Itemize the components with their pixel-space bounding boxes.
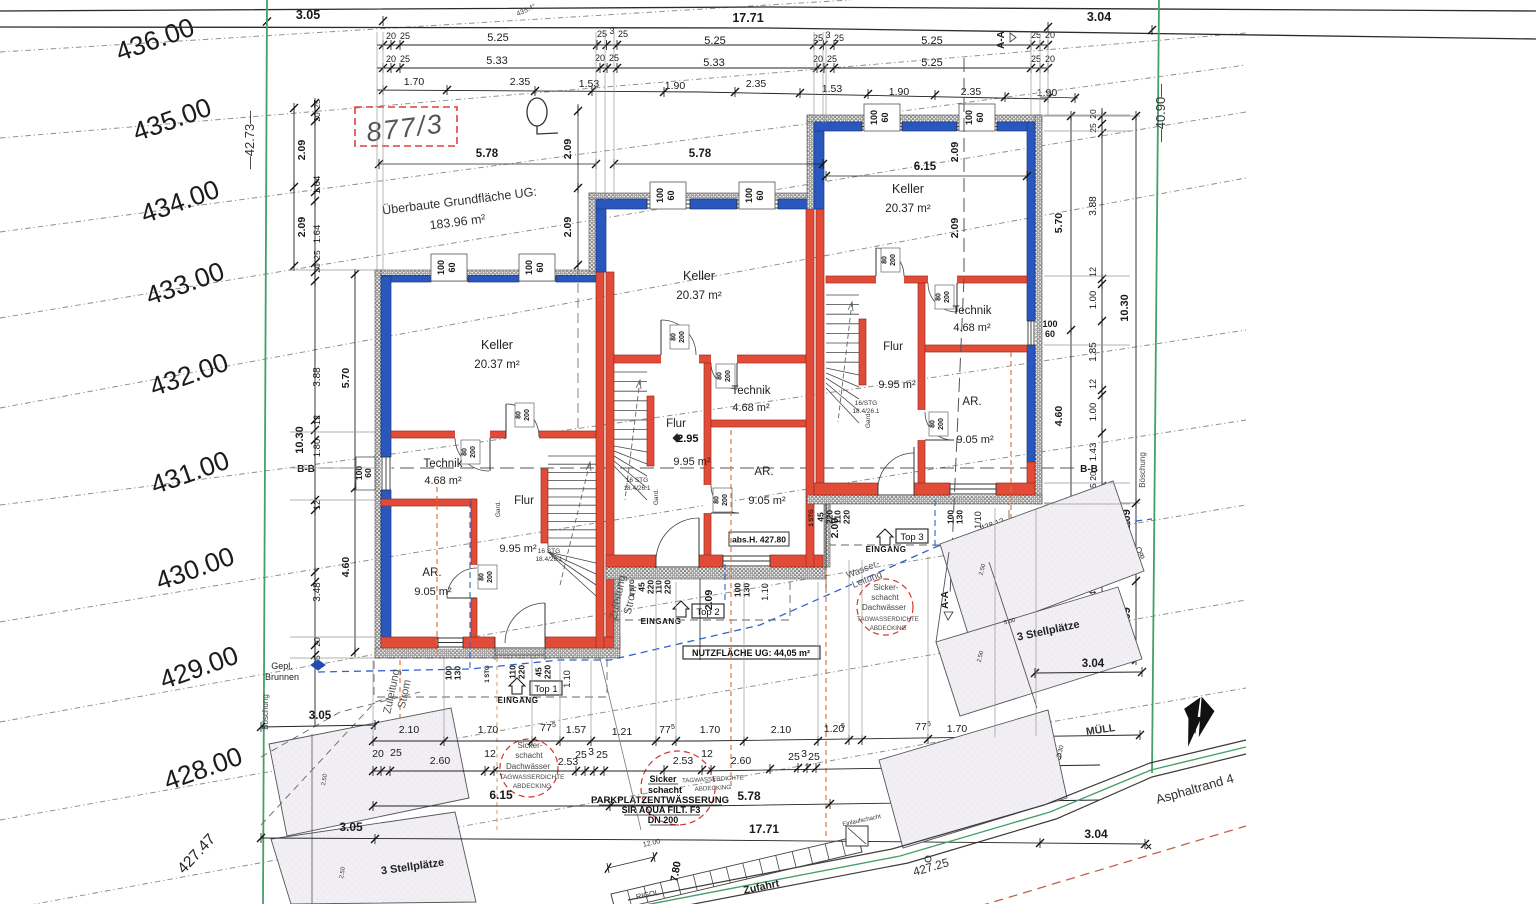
svg-text:3: 3 [588,746,594,758]
svg-text:9.05 m²: 9.05 m² [414,586,452,598]
svg-text:Keller: Keller [481,338,513,352]
svg-text:Dachwässer: Dachwässer [506,762,550,771]
svg-text:80: 80 [882,256,889,264]
svg-text:Technik: Technik [732,385,771,397]
svg-text:6.15: 6.15 [489,788,513,802]
svg-text:20: 20 [813,54,823,64]
svg-text:—42.73—: —42.73— [242,111,257,170]
svg-text:25: 25 [312,99,322,109]
svg-text:12: 12 [484,748,496,760]
svg-text:9.95 m²: 9.95 m² [673,456,711,468]
svg-text:SIR AQUA FILT. F3: SIR AQUA FILT. F3 [622,805,701,815]
svg-text:80: 80 [936,293,943,301]
svg-text:Brunnen: Brunnen [265,672,299,682]
svg-text:6.15: 6.15 [914,161,937,173]
svg-text:80: 80 [930,420,937,428]
svg-text:77: 77 [659,724,671,736]
svg-text:1.00: 1.00 [1088,291,1099,310]
svg-text:2.09: 2.09 [296,140,308,161]
svg-text:2.35: 2.35 [746,78,767,90]
svg-text:2.35: 2.35 [510,76,531,88]
svg-text:60: 60 [975,112,985,122]
svg-text:80: 80 [479,573,486,581]
svg-text:5.25: 5.25 [921,57,942,69]
svg-text:1 STG: 1 STG [809,509,815,527]
svg-text:130: 130 [453,666,463,680]
svg-text:5.33: 5.33 [486,55,507,67]
svg-text:4.60: 4.60 [1053,406,1065,427]
svg-text:10.30: 10.30 [1119,294,1131,322]
svg-text:1.64: 1.64 [312,176,323,195]
svg-text:12: 12 [1088,267,1098,277]
svg-text:1.70: 1.70 [478,724,499,736]
svg-text:12: 12 [701,748,713,760]
svg-text:3: 3 [801,748,807,760]
svg-text:Top 1: Top 1 [534,684,557,695]
svg-text:25: 25 [312,250,322,260]
svg-text:Dachwässer: Dachwässer [862,603,906,612]
svg-text:80: 80 [671,333,678,341]
svg-text:EINGANG: EINGANG [641,617,682,626]
svg-text:77: 77 [915,721,927,733]
svg-text:220: 220 [517,665,527,679]
svg-text:3.88: 3.88 [1088,196,1099,216]
svg-text:200: 200 [524,409,531,421]
svg-text:25: 25 [788,751,800,763]
svg-text:80: 80 [516,411,523,419]
svg-text:25: 25 [400,31,410,41]
svg-text:1.64: 1.64 [312,225,323,244]
svg-text:2.09: 2.09 [562,139,574,160]
svg-text:5.25: 5.25 [704,35,725,47]
svg-text:4.68 m²: 4.68 m² [953,322,991,334]
svg-text:60: 60 [755,190,765,200]
svg-text:schacht: schacht [871,593,899,602]
svg-text:17.71: 17.71 [749,822,779,836]
svg-text:schacht: schacht [515,751,543,760]
svg-text:2.09: 2.09 [829,518,841,539]
svg-text:2.09: 2.09 [949,142,961,163]
svg-text:1.80: 1.80 [312,439,323,458]
svg-text:1.57: 1.57 [566,724,587,736]
svg-text:20.37 m²: 20.37 m² [474,359,520,371]
svg-text:A-A: A-A [996,31,1007,49]
svg-text:Flur: Flur [883,341,903,353]
svg-text:3.05: 3.05 [309,710,332,722]
svg-text:1.90: 1.90 [889,86,910,98]
svg-text:18.4/26.1: 18.4/26.1 [623,485,650,492]
svg-text:9.05 m²: 9.05 m² [956,434,994,446]
svg-text:25: 25 [1031,30,1041,40]
svg-text:60: 60 [1045,329,1055,339]
svg-text:20: 20 [312,112,322,122]
svg-text:3.04: 3.04 [1084,827,1108,841]
svg-text:1.43: 1.43 [1088,443,1099,462]
svg-text:12: 12 [312,500,322,510]
svg-text:100: 100 [964,110,974,125]
svg-text:3.04: 3.04 [1087,10,1111,24]
svg-text:2.09: 2.09 [562,217,574,238]
svg-text:200: 200 [470,446,477,458]
svg-text:5: 5 [552,722,556,729]
svg-text:60: 60 [447,262,457,272]
svg-text:5: 5 [671,724,675,731]
svg-text:25: 25 [400,54,410,64]
svg-text:200: 200 [487,571,494,583]
svg-text:4.68 m²: 4.68 m² [424,475,462,487]
svg-text:ABDECKING: ABDECKING [870,625,907,632]
svg-text:10.30: 10.30 [294,426,306,454]
svg-text:1.90: 1.90 [665,80,686,92]
svg-text:20.37 m²: 20.37 m² [885,203,931,215]
svg-text:2.09: 2.09 [296,217,308,238]
svg-text:AR.: AR. [422,567,441,579]
svg-text:20: 20 [1045,30,1055,40]
svg-text:100: 100 [524,260,534,275]
svg-text:200: 200 [944,291,951,303]
svg-text:5: 5 [927,721,931,728]
svg-text:4.68 m²: 4.68 m² [732,402,770,414]
svg-text:Sicker: Sicker [649,774,677,784]
svg-text:25: 25 [808,751,820,763]
svg-text:abs.H. 427.80: abs.H. 427.80 [732,535,786,545]
svg-text:20: 20 [1088,109,1098,119]
svg-text:Böschung: Böschung [261,694,270,730]
svg-text:1.10: 1.10 [760,583,770,601]
svg-text:2.10: 2.10 [771,724,792,736]
svg-text:Flur: Flur [514,495,534,507]
svg-text:25: 25 [618,29,628,39]
svg-text:1.53: 1.53 [822,83,843,95]
svg-text:schacht: schacht [648,785,682,795]
svg-text:B-B: B-B [1080,464,1098,475]
svg-text:1.70: 1.70 [700,724,721,736]
svg-text:220: 220 [842,510,852,524]
svg-text:9.95 m²: 9.95 m² [499,543,537,555]
svg-text:20: 20 [386,31,396,41]
svg-text:3.48: 3.48 [312,582,323,602]
svg-text:9.95 m²: 9.95 m² [878,379,916,391]
svg-text:80: 80 [717,372,724,380]
svg-text:Top 3: Top 3 [900,532,923,543]
svg-text:80: 80 [462,448,469,456]
svg-text:77: 77 [540,722,552,734]
svg-text:2.53: 2.53 [673,755,694,767]
svg-text:20: 20 [386,54,396,64]
svg-text:2.60: 2.60 [731,755,752,767]
svg-text:1.70: 1.70 [947,723,968,735]
svg-text:5.25: 5.25 [487,32,508,44]
svg-text:Technik: Technik [424,458,463,470]
svg-text:5.25: 5.25 [921,35,942,47]
svg-text:200: 200 [890,254,897,266]
svg-text:TAGWASSERDICHTE: TAGWASSERDICHTE [499,774,565,781]
svg-text:17.71: 17.71 [732,11,763,25]
svg-text:2.60: 2.60 [430,755,451,767]
svg-text:80: 80 [714,496,721,504]
svg-text:100: 100 [744,188,754,203]
svg-text:16/STG: 16/STG [855,400,877,407]
svg-text:16 STG: 16 STG [626,477,648,484]
svg-text:100: 100 [436,260,446,275]
svg-text:18.4/26.1: 18.4/26.1 [535,556,562,563]
svg-text:20: 20 [312,637,322,647]
svg-text:Technik: Technik [953,305,992,317]
svg-text:25: 25 [1031,54,1041,64]
svg-text:1.10: 1.10 [562,670,572,688]
svg-text:60: 60 [666,190,676,200]
svg-text:12: 12 [1088,379,1098,389]
svg-text:AR.: AR. [962,396,981,408]
svg-text:200: 200 [938,418,945,430]
svg-text:5: 5 [841,723,845,730]
svg-text:EINGANG: EINGANG [866,545,907,554]
svg-text:60: 60 [363,468,373,478]
svg-text:200: 200 [679,331,686,343]
svg-text:18.4/26.1: 18.4/26.1 [852,408,879,415]
svg-text:1.00: 1.00 [1088,403,1099,422]
svg-text:25: 25 [597,29,607,39]
svg-text:25: 25 [834,33,844,43]
svg-text:1.70: 1.70 [404,76,425,88]
svg-text:Keller: Keller [892,182,924,196]
svg-text:12: 12 [312,415,322,425]
svg-text:Gepl.: Gepl. [271,661,293,671]
svg-text:5.70: 5.70 [1053,213,1065,234]
svg-text:60: 60 [535,262,545,272]
svg-text:—40.90—: —40.90— [1153,84,1168,143]
svg-text:25: 25 [827,54,837,64]
svg-text:2.10: 2.10 [399,724,420,736]
svg-text:220: 220 [543,665,553,679]
svg-text:25: 25 [390,747,402,759]
svg-text:100: 100 [655,188,665,203]
svg-text:4.60: 4.60 [340,557,352,578]
svg-text:Böschung: Böschung [1138,452,1147,488]
svg-text:5.70: 5.70 [340,368,352,389]
svg-text:200: 200 [722,494,729,506]
svg-text:5.78: 5.78 [689,148,712,160]
svg-text:3.88: 3.88 [312,367,323,387]
svg-text:Keller: Keller [683,269,715,283]
svg-text:3.05: 3.05 [339,820,363,834]
svg-text:2.09: 2.09 [703,590,715,611]
svg-text:130: 130 [955,510,965,524]
svg-text:Gard.: Gard. [653,489,660,505]
svg-text:25: 25 [575,749,587,761]
svg-text:25: 25 [596,749,608,761]
svg-text:3.04: 3.04 [1082,658,1105,670]
svg-text:DN 200: DN 200 [648,815,679,825]
svg-text:20: 20 [1045,54,1055,64]
svg-text:2.09: 2.09 [949,218,961,239]
svg-text:NUTZFLÄCHE UG: 44,05 m²: NUTZFLÄCHE UG: 44,05 m² [692,648,810,658]
svg-text:100: 100 [869,110,879,125]
svg-text:100: 100 [1042,319,1057,329]
svg-text:Gard.: Gard. [495,501,502,517]
svg-text:1.21: 1.21 [612,726,633,738]
svg-text:Flur: Flur [666,418,686,430]
svg-text:20: 20 [312,263,322,273]
svg-text:9.05 m²: 9.05 m² [748,495,786,507]
svg-text:AR.: AR. [754,466,773,478]
svg-text:B-B: B-B [297,464,315,475]
svg-text:TAGWASSERDICHTE: TAGWASSERDICHTE [857,616,919,623]
svg-text:16 STG: 16 STG [538,548,560,555]
svg-text:3.05: 3.05 [296,8,320,22]
svg-text:20.37 m²: 20.37 m² [676,290,722,302]
svg-text:25: 25 [813,33,823,43]
svg-text:Sicker-: Sicker- [874,583,899,592]
svg-text:ABDECKING: ABDECKING [513,783,551,790]
svg-text:5.33: 5.33 [703,57,724,69]
svg-text:60: 60 [880,112,890,122]
svg-text:5.78: 5.78 [476,148,499,160]
svg-text:200: 200 [725,370,732,382]
svg-text:20: 20 [372,748,384,760]
svg-text:20: 20 [595,53,605,63]
svg-text:130: 130 [742,583,752,597]
svg-text:220: 220 [663,580,673,594]
svg-text:5.78: 5.78 [737,789,761,803]
